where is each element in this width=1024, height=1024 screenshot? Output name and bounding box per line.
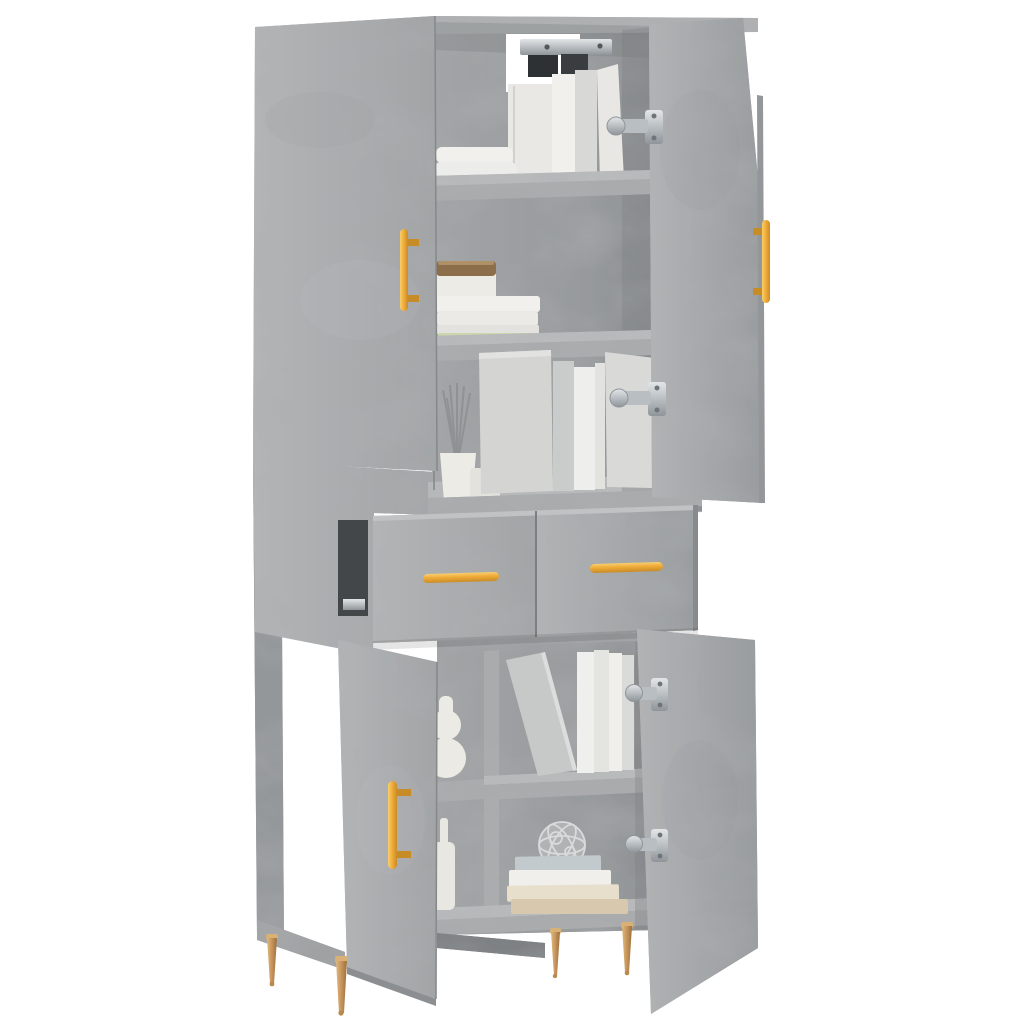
book [437,311,538,326]
leg [550,928,561,978]
hinge-cup [626,685,643,702]
book [577,652,594,773]
leg-tip [338,1010,343,1015]
book [575,70,597,181]
handle-post [395,789,411,796]
lying-book [436,147,513,163]
bracket-screw [597,43,602,48]
hinge-screw [658,703,663,708]
leg [335,956,348,1016]
handle-bar [762,220,770,303]
concrete-blotch [662,740,738,860]
bottle-neck [440,818,448,848]
file-box [479,350,553,494]
book [511,899,628,914]
leg [266,934,278,986]
book [594,650,609,772]
jar-lid-rim [438,261,494,265]
hinge-screw [652,114,657,119]
leg-spike [622,926,632,973]
drawer-slide-rail [343,599,365,610]
hinge-screw [658,854,663,859]
upper-lower-books [479,350,655,494]
handle-bar [388,781,397,869]
book [435,296,540,312]
hinge-screw [658,833,663,838]
leg-tip [270,982,275,987]
hinge-screw [655,386,660,391]
leg-spike [336,961,347,1013]
drawer-right-end-edge [693,505,698,631]
book [609,653,622,771]
book [595,363,605,489]
concrete-blotch [265,92,375,148]
lower-left-door-edge [436,662,437,999]
leg-spike [551,932,560,976]
book [605,352,655,488]
book [574,367,595,490]
handle-bar [400,229,408,311]
leg-spike [267,938,277,984]
hinge-screw [652,136,657,141]
book [622,655,634,770]
book [552,74,575,181]
lower-left-shelf [437,779,484,802]
bracket-slot-left [528,55,558,77]
hinge-cup [610,389,628,407]
concrete-blotch [660,90,740,210]
lower-floor-underside [437,933,545,958]
drawer-open [373,505,698,650]
vase-neck [439,696,453,718]
leg [621,922,633,975]
cabinet-illustration [0,0,1024,1024]
product-photo [0,0,1024,1024]
book [553,361,574,491]
book [509,870,611,887]
hinge-screw [658,682,663,687]
hinge-screw [655,408,660,413]
book [436,325,539,334]
hinge-cup [626,836,643,853]
leg-tip [553,974,557,978]
bracket-screw [544,44,549,49]
leg-tip [625,971,630,976]
hinge-cup [607,117,625,135]
handle-post [395,851,411,858]
